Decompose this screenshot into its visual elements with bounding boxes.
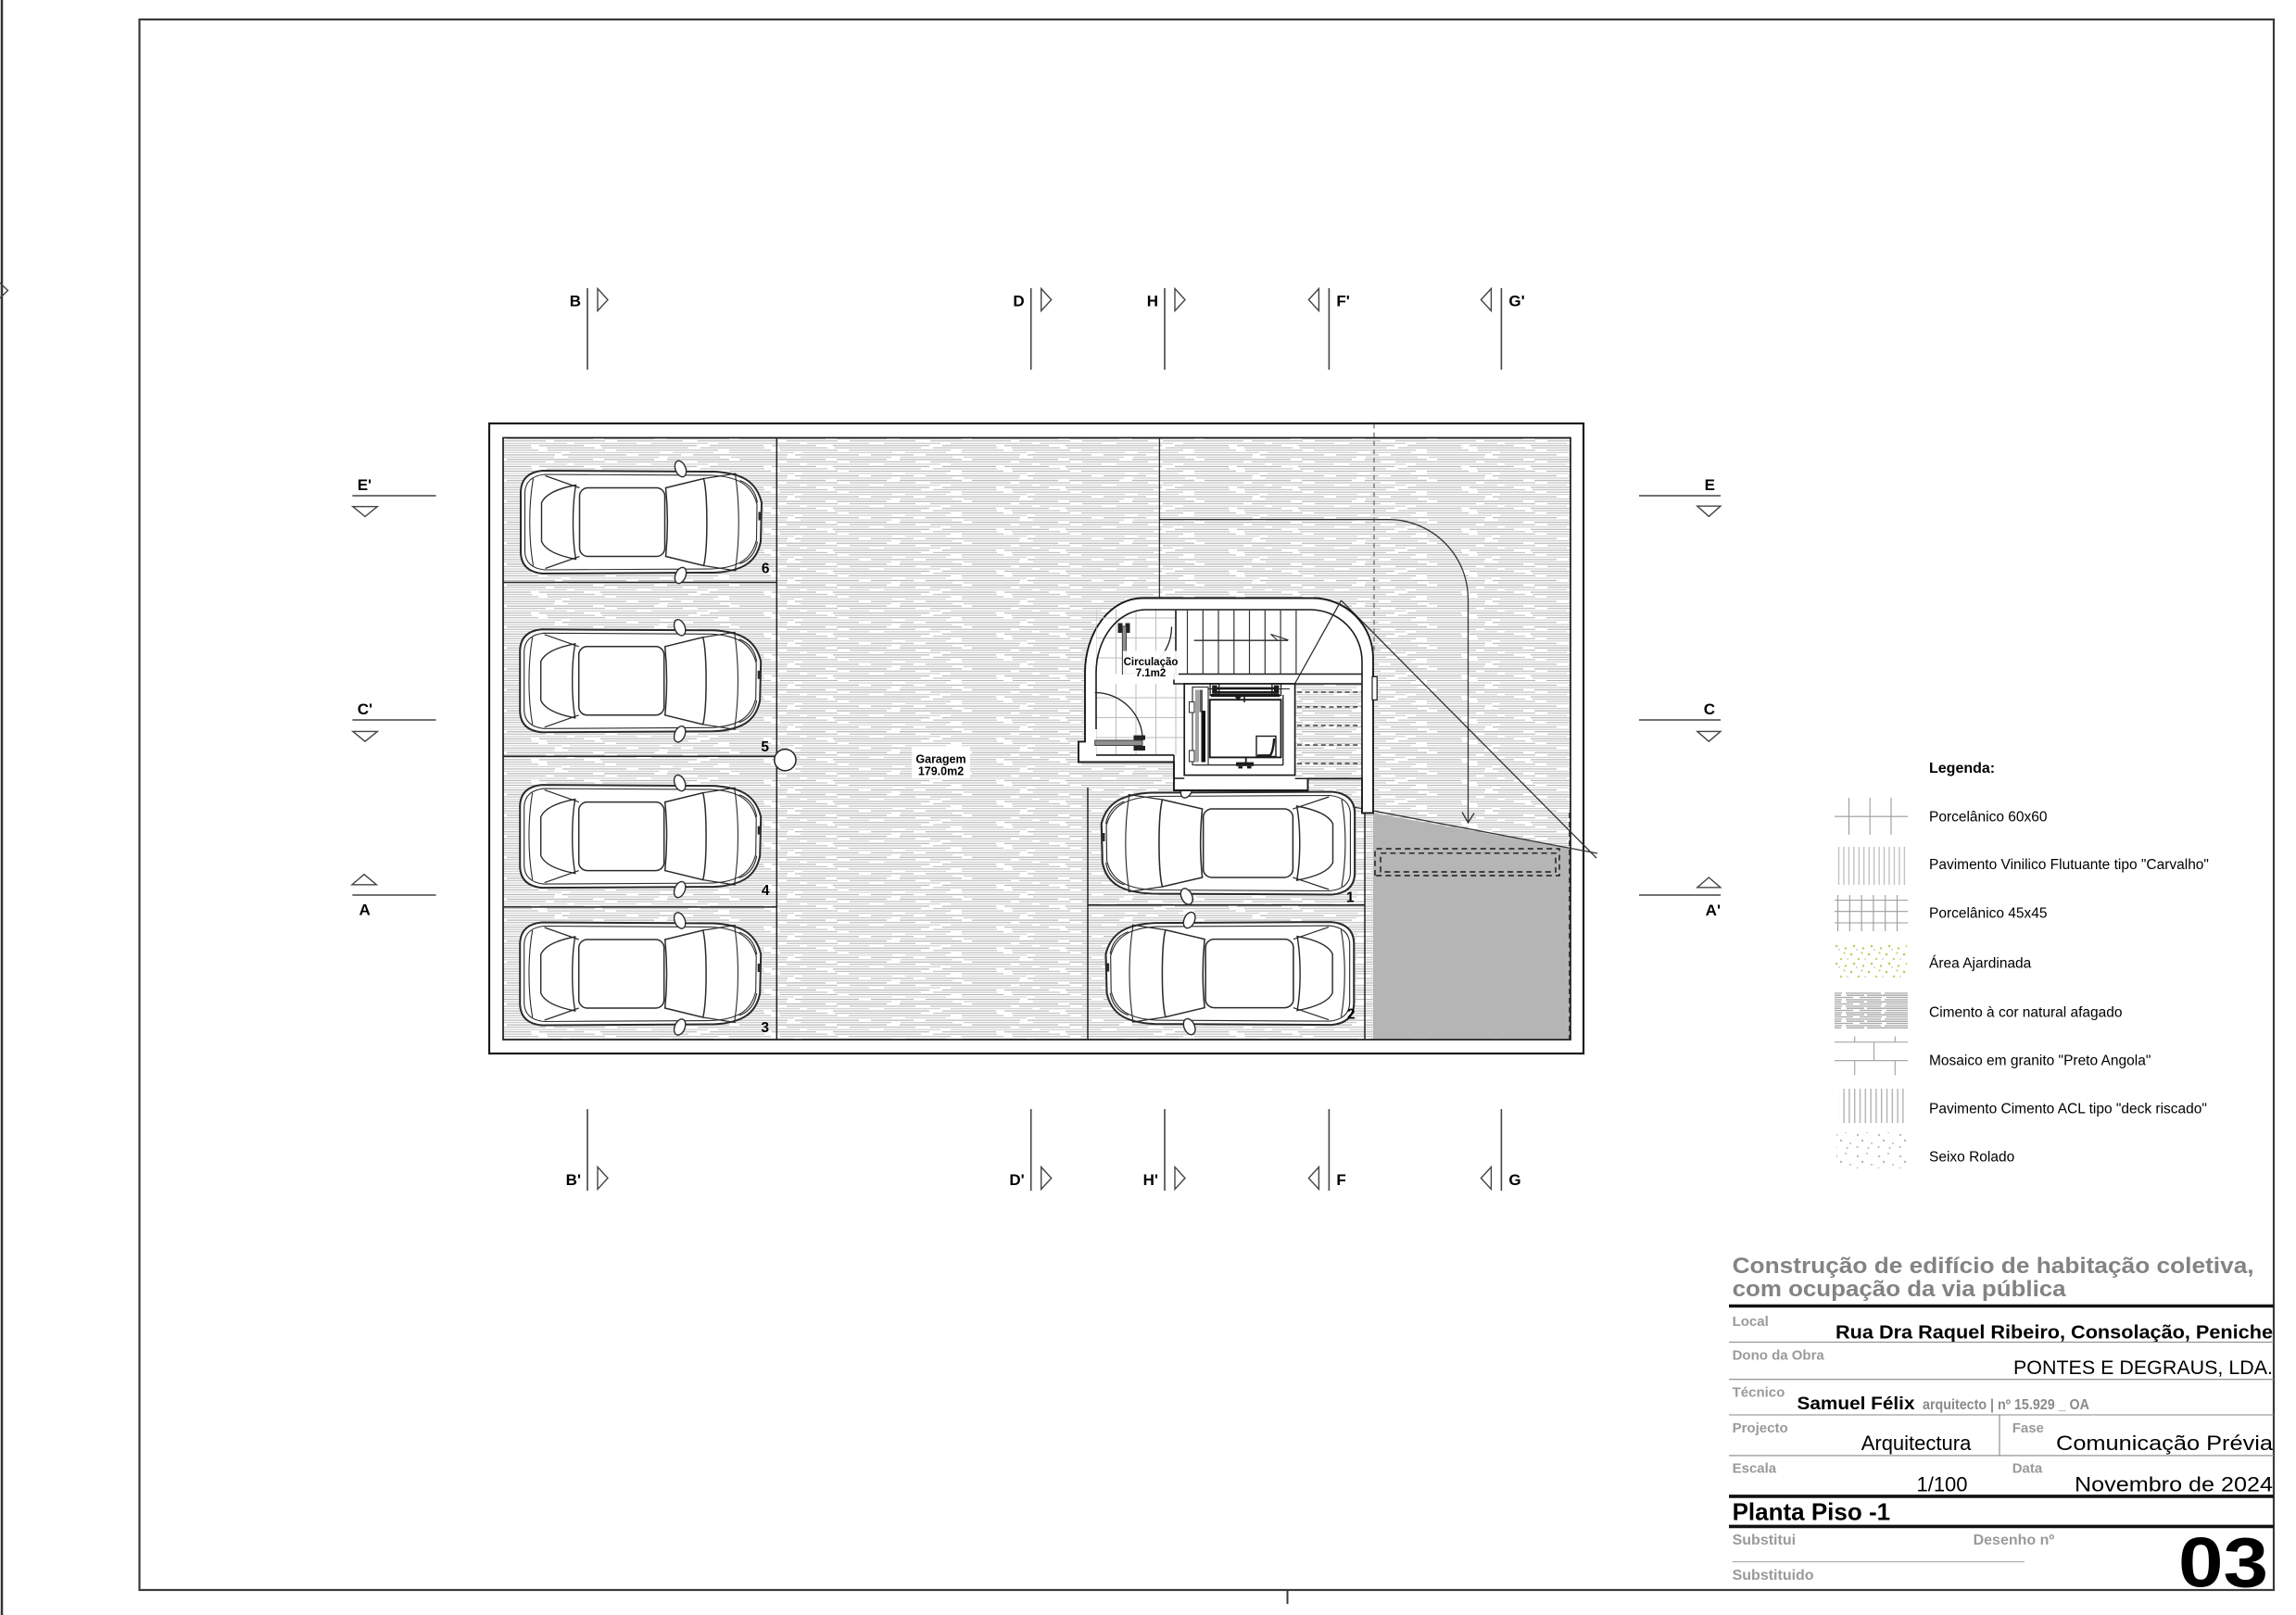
svg-text:D: D	[1013, 293, 1024, 310]
svg-text:Desenho nº: Desenho nº	[1974, 1533, 2055, 1548]
svg-text:5: 5	[761, 739, 769, 755]
svg-text:Área Ajardinada: Área Ajardinada	[1929, 956, 2032, 972]
svg-text:Legenda:: Legenda:	[1929, 761, 1995, 776]
svg-text:Data: Data	[2012, 1461, 2043, 1477]
svg-text:B: B	[570, 293, 581, 310]
svg-text:179.0m2: 179.0m2	[918, 765, 964, 778]
svg-text:H: H	[1147, 293, 1158, 310]
svg-text:D': D'	[1009, 1171, 1024, 1189]
svg-text:E': E'	[358, 476, 372, 494]
svg-text:Garagem: Garagem	[915, 753, 965, 766]
svg-text:Mosaico em granito "Preto Ango: Mosaico em granito "Preto Angola"	[1929, 1054, 2151, 1069]
svg-text:Escala: Escala	[1733, 1461, 1777, 1477]
svg-text:C: C	[1704, 700, 1715, 718]
svg-text:Porcelânico 45x45: Porcelânico 45x45	[1929, 906, 2048, 922]
svg-text:Substituido: Substituido	[1733, 1568, 1814, 1583]
svg-text:arquitecto | nº 15.929 _ OA: arquitecto | nº 15.929 _ OA	[1923, 1397, 2089, 1413]
svg-text:Técnico: Técnico	[1733, 1385, 1785, 1401]
svg-text:Novembro de 2024: Novembro de 2024	[2075, 1473, 2273, 1496]
svg-text:Dono da Obra: Dono da Obra	[1733, 1348, 1825, 1364]
svg-text:Pavimento Vinilico Flutuante t: Pavimento Vinilico Flutuante tipo "Carva…	[1929, 857, 2209, 873]
svg-text:C': C'	[358, 700, 372, 718]
svg-text:PONTES E DEGRAUS, LDA.: PONTES E DEGRAUS, LDA.	[2013, 1357, 2273, 1379]
svg-text:Seixo Rolado: Seixo Rolado	[1929, 1150, 2014, 1166]
svg-text:G': G'	[1508, 293, 1524, 310]
svg-text:F': F'	[1336, 293, 1349, 310]
svg-text:Substitui: Substitui	[1733, 1533, 1796, 1548]
svg-text:Circulação: Circulação	[1124, 657, 1179, 668]
svg-text:Projecto: Projecto	[1733, 1420, 1788, 1436]
svg-text:6: 6	[762, 561, 770, 577]
svg-text:Local: Local	[1733, 1314, 1769, 1330]
svg-text:A': A'	[1706, 902, 1721, 919]
svg-text:H': H'	[1143, 1171, 1158, 1189]
svg-text:1: 1	[1346, 890, 1355, 906]
svg-text:E: E	[1705, 476, 1715, 494]
svg-text:Arquitectura: Arquitectura	[1861, 1432, 1972, 1455]
svg-text:F: F	[1336, 1171, 1345, 1189]
svg-text:Porcelânico 60x60: Porcelânico 60x60	[1929, 810, 2048, 826]
svg-text:A: A	[360, 901, 371, 918]
svg-text:03: 03	[2178, 1524, 2268, 1603]
svg-text:G: G	[1508, 1171, 1520, 1189]
svg-text:Comunicação Prévia: Comunicação Prévia	[2056, 1432, 2274, 1455]
svg-text:7.1m2: 7.1m2	[1136, 668, 1167, 679]
svg-text:Samuel Félix: Samuel Félix	[1798, 1394, 1915, 1414]
svg-text:Planta Piso -1: Planta Piso -1	[1733, 1498, 1891, 1526]
svg-text:Fase: Fase	[2012, 1420, 2044, 1436]
svg-text:Construção de edifício de habi: Construção de edifício de habitação cole…	[1733, 1254, 2254, 1279]
svg-text:com ocupação da via pública: com ocupação da via pública	[1733, 1277, 2067, 1302]
svg-text:Rua Dra Raquel Ribeiro, Consol: Rua Dra Raquel Ribeiro, Consolação, Peni…	[1836, 1323, 2273, 1344]
svg-text:B': B'	[566, 1171, 581, 1189]
svg-text:2: 2	[1347, 1007, 1356, 1023]
svg-text:4: 4	[762, 883, 770, 899]
svg-text:3: 3	[761, 1020, 769, 1036]
svg-text:Cimento à cor natural afagado: Cimento à cor natural afagado	[1929, 1005, 2123, 1021]
svg-text:1/100: 1/100	[1916, 1473, 1967, 1496]
svg-text:Pavimento Cimento ACL tipo "de: Pavimento Cimento ACL tipo "deck riscado…	[1929, 1102, 2207, 1117]
